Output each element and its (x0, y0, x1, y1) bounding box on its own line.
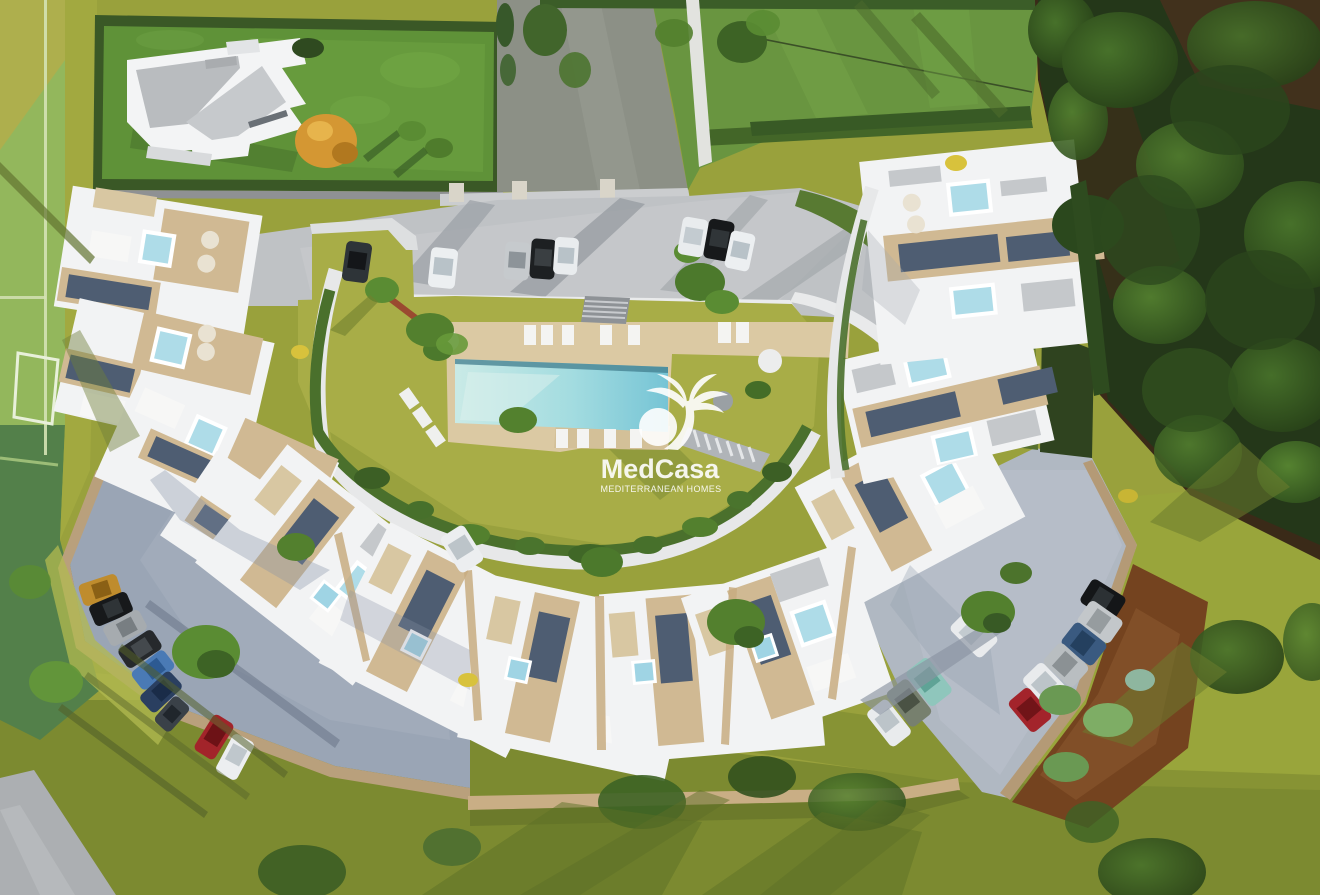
svg-text:MEDITERRANEAN HOMES: MEDITERRANEAN HOMES (600, 484, 721, 494)
svg-text:MedCasa: MedCasa (601, 454, 721, 484)
